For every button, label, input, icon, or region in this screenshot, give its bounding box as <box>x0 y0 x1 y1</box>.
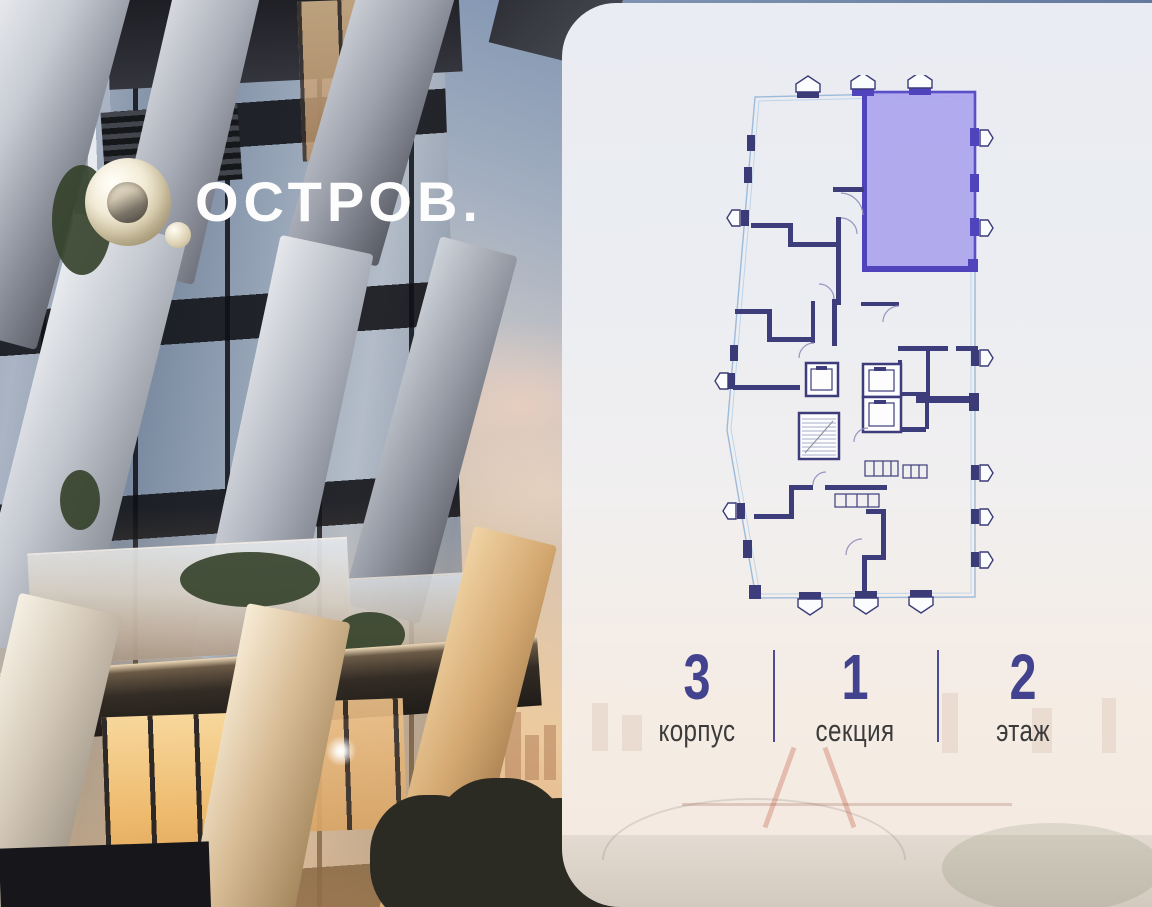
stat-value-etazh: 2 <box>966 648 1080 707</box>
stats-row: 3 корпус 1 секция 2 этаж <box>562 648 1152 758</box>
stat-block-sekciya: 1 секция <box>780 648 930 749</box>
stat-label-sekciya: секция <box>797 713 914 749</box>
stat-label-etazh: этаж <box>965 713 1082 749</box>
stat-label-korpus: корпус <box>639 713 756 749</box>
floor-plan-svg <box>713 75 1013 625</box>
logo-o-mark <box>85 158 171 246</box>
sun-glint <box>323 733 359 769</box>
selected-unit-highlight[interactable] <box>862 91 978 272</box>
stat-divider <box>773 650 775 742</box>
trees-silhouette <box>562 835 1152 907</box>
stat-value-korpus: 3 <box>640 648 754 707</box>
balcony-plant <box>60 470 100 530</box>
logo-o-hole <box>107 182 147 223</box>
balcony-plant <box>180 552 320 607</box>
skyline-silhouette <box>525 735 539 780</box>
logo-text: ОСТРОВ. <box>195 174 483 230</box>
stat-divider <box>937 650 939 742</box>
stat-value-sekciya: 1 <box>798 648 912 707</box>
stat-block-korpus: 3 корпус <box>622 648 772 749</box>
building-shadow-base <box>0 841 211 907</box>
logo-dot <box>165 222 191 248</box>
info-card: 3 корпус 1 секция 2 этаж <box>562 3 1152 907</box>
plan-fixtures <box>835 461 927 507</box>
floor-plan <box>713 75 1013 625</box>
stairwell <box>799 413 839 459</box>
brand-logo: ОСТРОВ. <box>85 158 483 246</box>
stat-block-etazh: 2 этаж <box>948 648 1098 749</box>
page: ОСТРОВ. <box>0 0 1152 907</box>
skyline-silhouette <box>544 725 556 780</box>
